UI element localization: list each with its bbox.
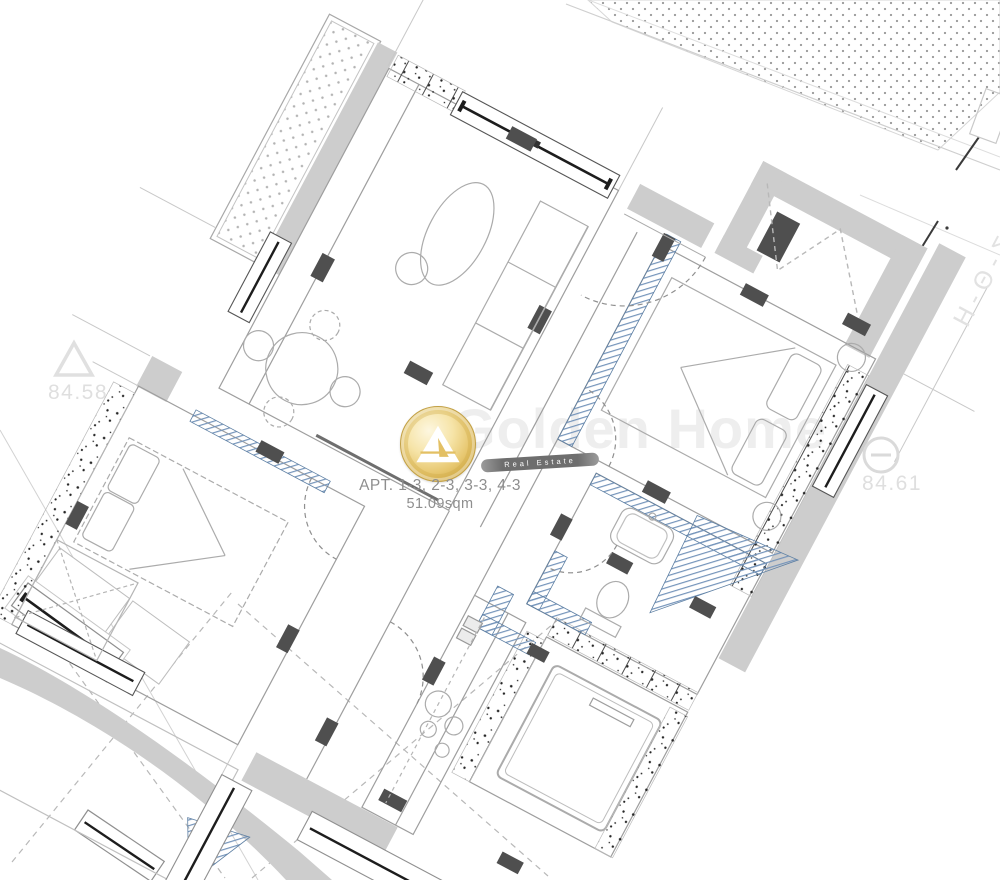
elevation-left-label: 84.58 [38, 381, 118, 405]
burner [433, 741, 452, 760]
sofa [443, 201, 588, 410]
toilet [591, 576, 635, 624]
brand-badge-label: Real Estate [504, 456, 576, 469]
burner [417, 718, 439, 740]
chaise [390, 166, 509, 308]
floor-plan-svg [0, 0, 1000, 880]
apartment-area-label: 51.09sqm [300, 496, 580, 512]
burner [442, 714, 466, 738]
brand-coin-logo [400, 406, 476, 482]
apartment-units-label: APT. 1-3, 2-3, 3-3, 4-3 [300, 478, 580, 494]
pyramid-logo-icon [411, 419, 465, 469]
triangle-outline-icon [52, 338, 96, 380]
neighbor-curved-wall [0, 648, 332, 880]
terrace-paving-top-right [588, 0, 1000, 150]
elevation-right-label: 84.61 [852, 472, 932, 496]
neighbor-window [75, 810, 165, 880]
floor-plan-page: Golden Home [0, 0, 1000, 880]
